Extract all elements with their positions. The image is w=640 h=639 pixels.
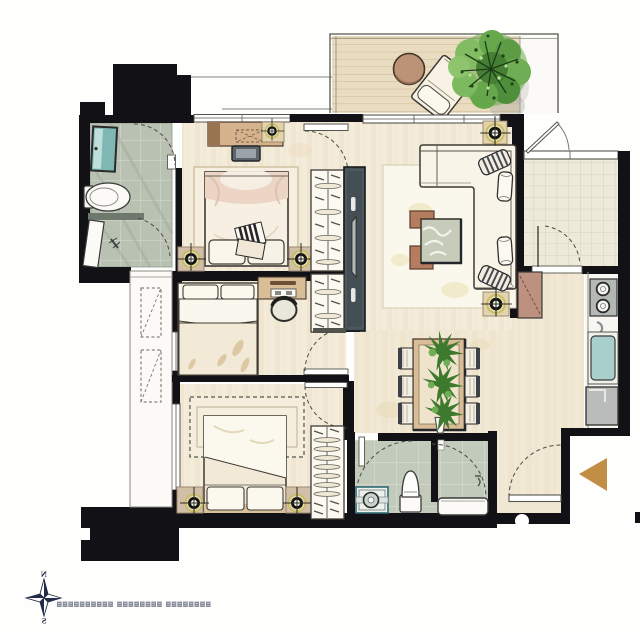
svg-text:S: S xyxy=(42,616,47,626)
svg-text:N: N xyxy=(40,569,47,579)
